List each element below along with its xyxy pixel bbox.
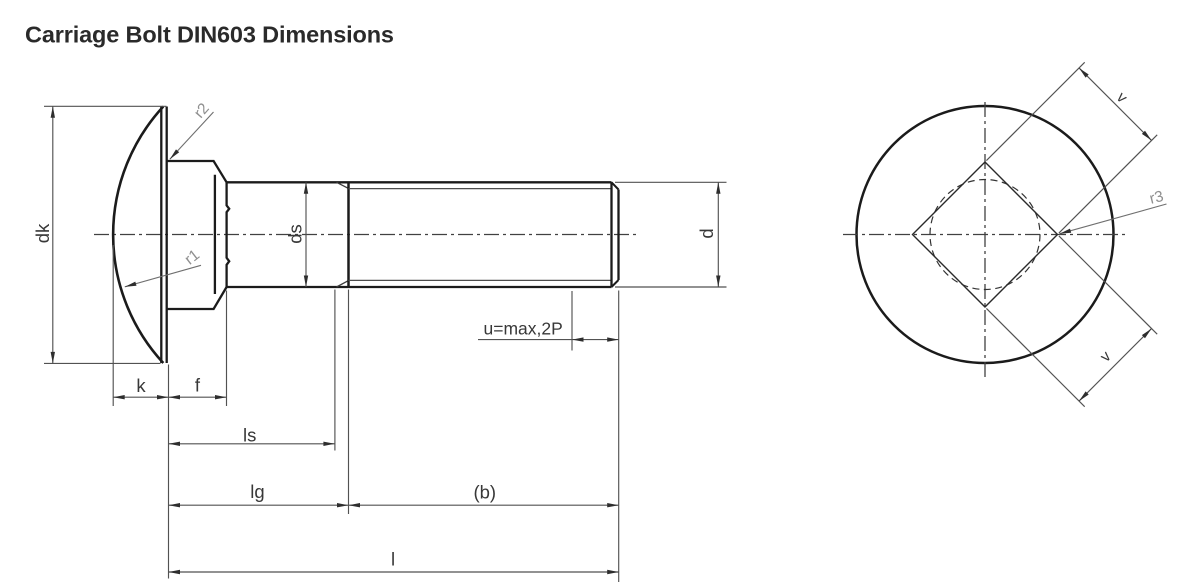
svg-text:ls: ls: [243, 425, 256, 446]
svg-text:u=max,2P: u=max,2P: [484, 319, 563, 339]
svg-text:lg: lg: [250, 481, 264, 502]
svg-text:d: d: [696, 228, 717, 238]
svg-text:l: l: [391, 549, 395, 570]
svg-text:f: f: [195, 375, 201, 396]
svg-text:(b): (b): [473, 482, 496, 503]
svg-text:dk: dk: [32, 223, 53, 243]
svg-text:Carriage Bolt DIN603 Dimension: Carriage Bolt DIN603 Dimensions: [25, 22, 394, 48]
svg-text:ds: ds: [285, 224, 306, 244]
svg-text:k: k: [136, 375, 146, 396]
